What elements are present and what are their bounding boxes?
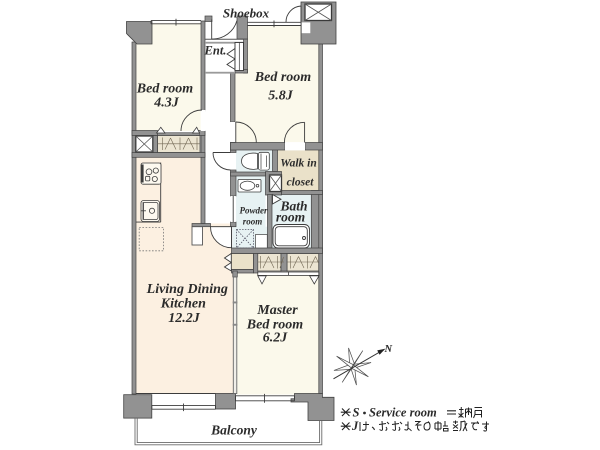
svg-text:N: N — [384, 344, 393, 355]
svg-text:4.3J: 4.3J — [153, 96, 180, 111]
svg-text:Walk in: Walk in — [280, 157, 317, 169]
svg-text:Balcony: Balcony — [210, 423, 258, 438]
svg-text:room: room — [243, 216, 263, 226]
svg-text:room: room — [276, 210, 305, 225]
svg-text:Shoebox: Shoebox — [223, 6, 270, 21]
svg-text:Master: Master — [256, 303, 298, 318]
svg-text:Service room: Service room — [369, 406, 437, 420]
svg-text:5.8J: 5.8J — [268, 89, 294, 104]
svg-text:Bed room: Bed room — [254, 70, 312, 85]
svg-text:Ent.: Ent. — [204, 44, 227, 58]
svg-text:Bed room: Bed room — [136, 82, 194, 97]
svg-text:S: S — [353, 406, 360, 420]
svg-text:Kitchen: Kitchen — [160, 297, 206, 312]
svg-text:12.2J: 12.2J — [168, 311, 201, 326]
svg-text:6.2J: 6.2J — [263, 331, 289, 346]
svg-text:closet: closet — [287, 176, 315, 188]
svg-text:Living Dining: Living Dining — [146, 282, 228, 297]
svg-text:J: J — [351, 419, 359, 433]
svg-text:Powder: Powder — [240, 205, 268, 215]
